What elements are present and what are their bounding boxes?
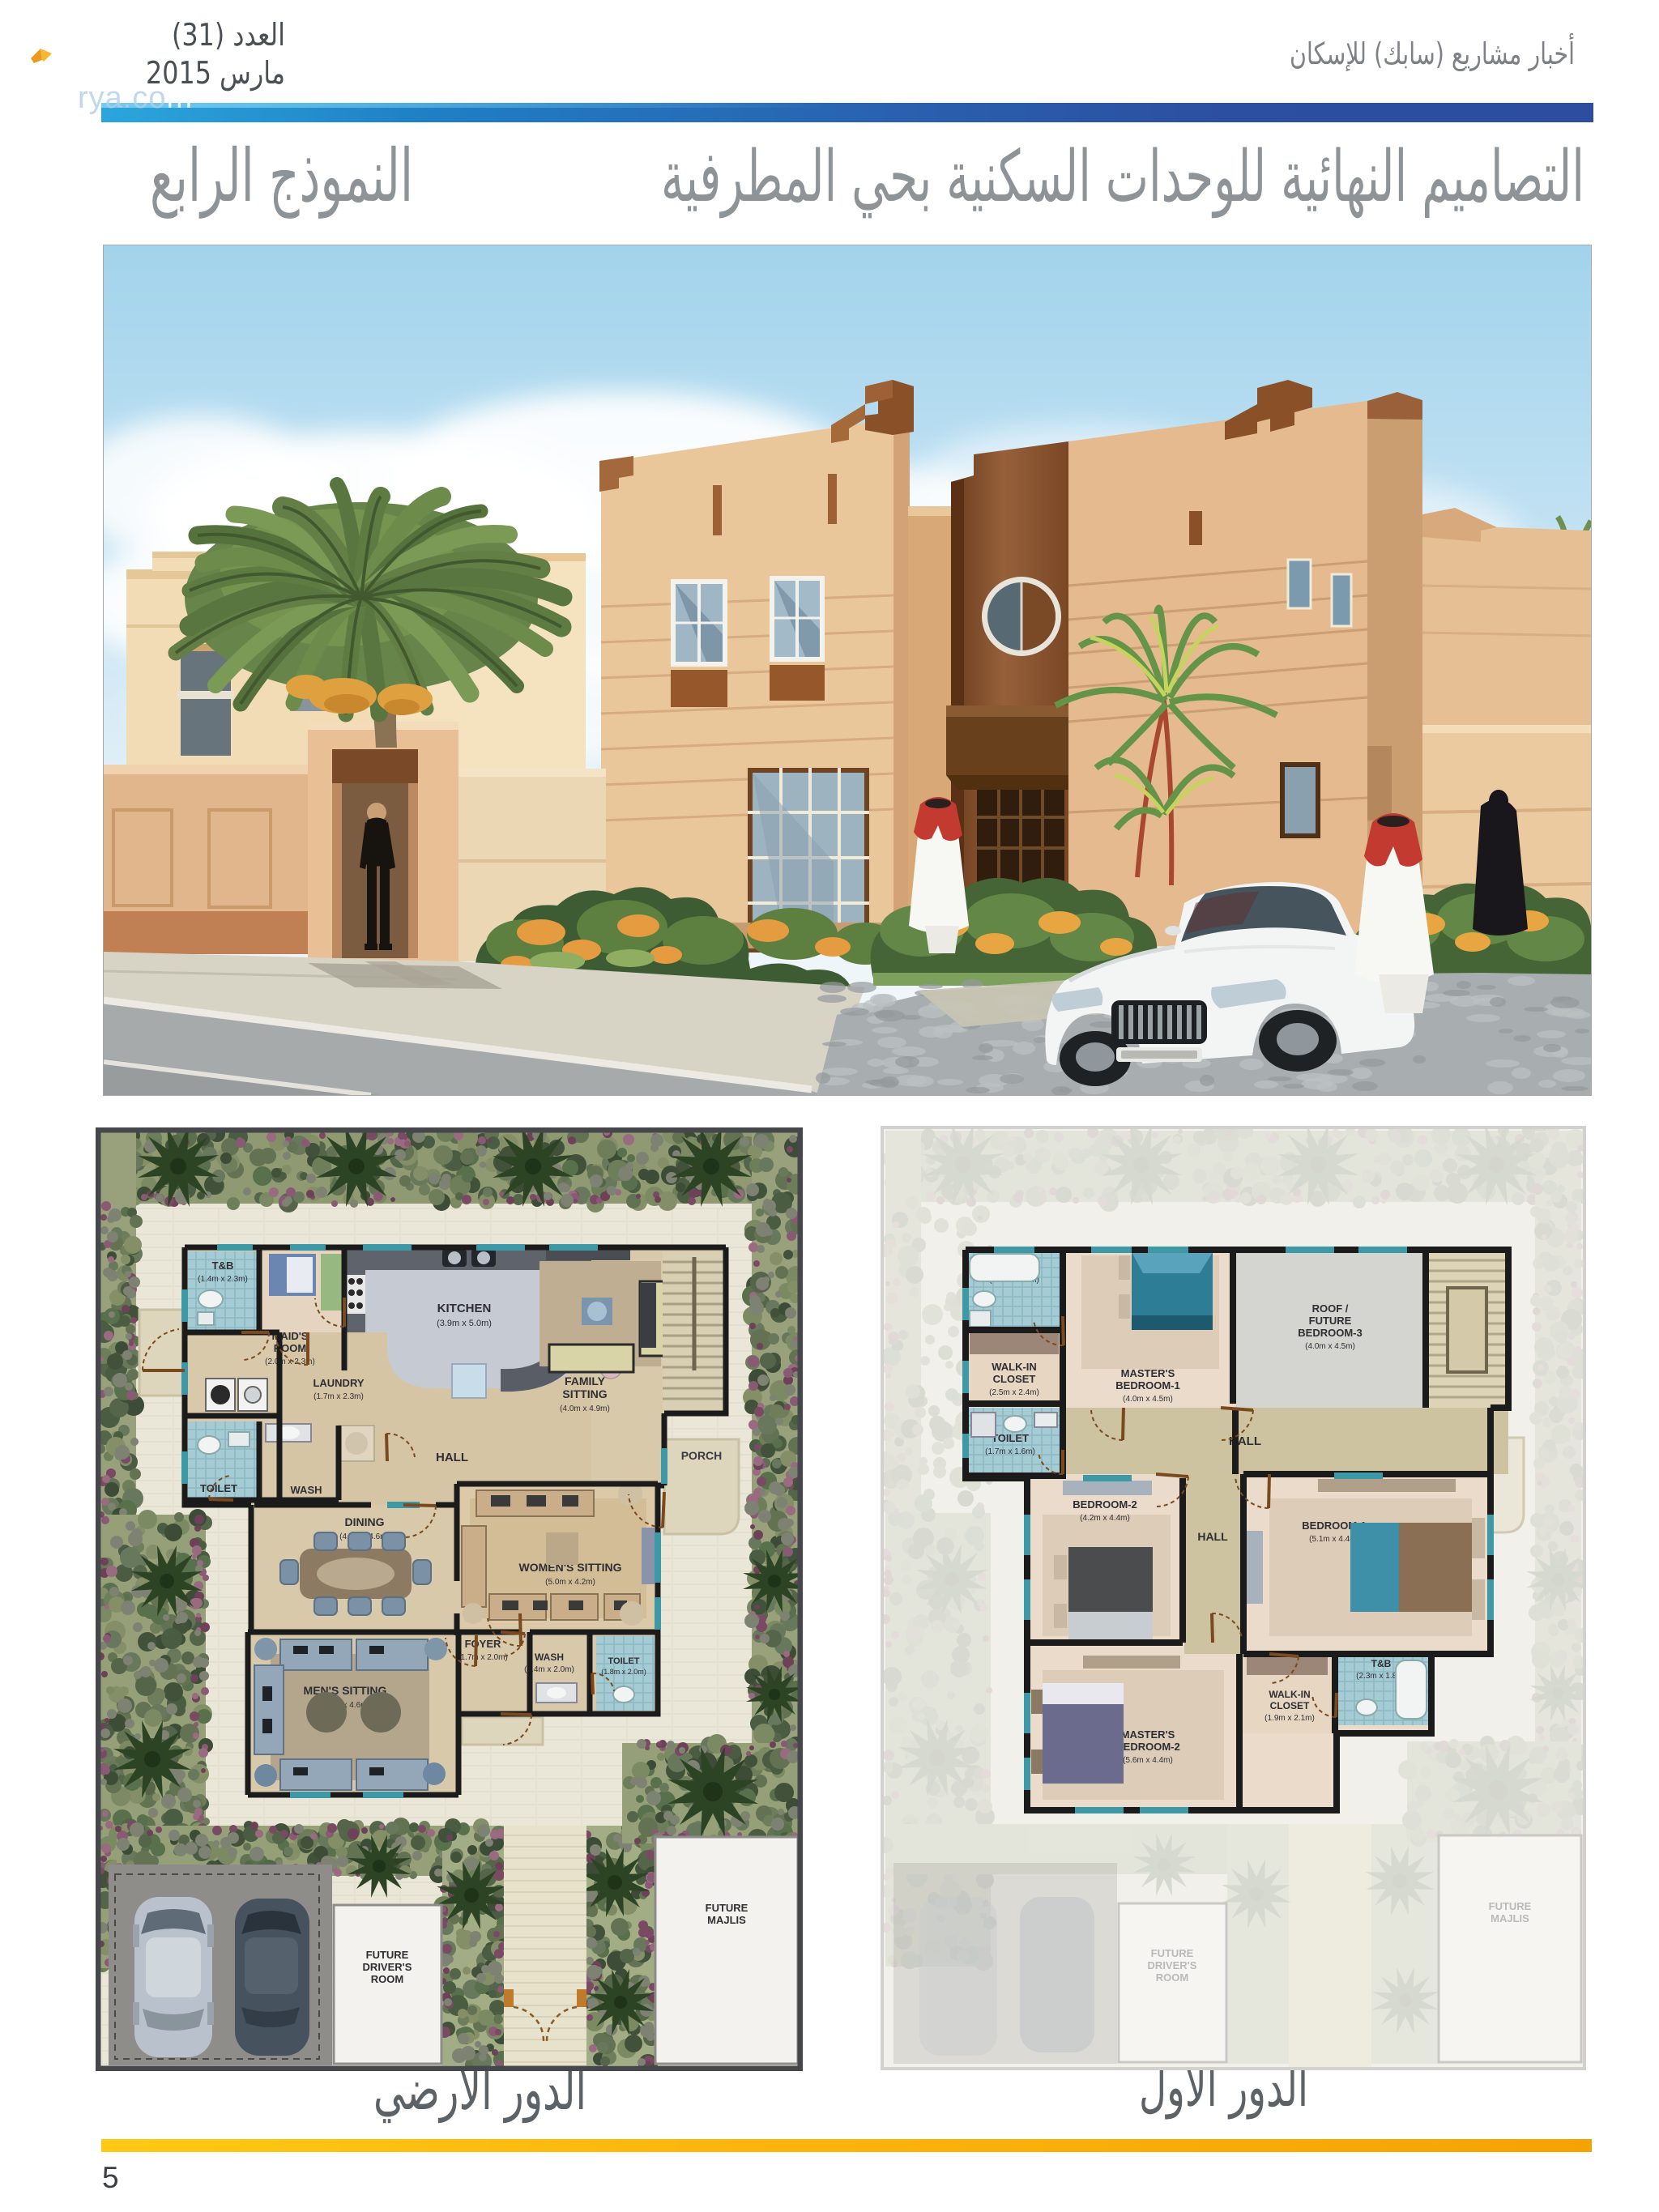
svg-text:BEDROOM-1: BEDROOM-1 xyxy=(1115,1379,1179,1392)
svg-text:FUTURE: FUTURE xyxy=(706,1902,748,1914)
svg-text:(1.7m x 2.3m): (1.7m x 2.3m) xyxy=(313,1392,364,1401)
svg-text:WALK-IN: WALK-IN xyxy=(992,1361,1037,1373)
svg-text:MAJLIS: MAJLIS xyxy=(707,1914,746,1926)
svg-text:MAJLIS: MAJLIS xyxy=(1491,1912,1529,1924)
svg-text:BEDROOM-2: BEDROOM-2 xyxy=(1073,1498,1137,1511)
svg-text:FUTURE: FUTURE xyxy=(1309,1315,1352,1327)
svg-text:HALL: HALL xyxy=(436,1451,468,1464)
svg-text:(4.0m x 4.5m): (4.0m x 4.5m) xyxy=(1305,1342,1355,1351)
svg-text:(1.7m x 2.0m): (1.7m x 2.0m) xyxy=(458,1653,508,1662)
svg-text:BEDROOM-3: BEDROOM-3 xyxy=(1298,1327,1362,1339)
svg-text:(1.8m x 2.0m): (1.8m x 2.0m) xyxy=(601,1668,646,1676)
svg-text:FOYER: FOYER xyxy=(465,1638,501,1650)
svg-text:MASTER'S: MASTER'S xyxy=(1121,1367,1175,1379)
svg-text:HALL: HALL xyxy=(1197,1530,1228,1543)
svg-text:CLOSET: CLOSET xyxy=(1270,1700,1310,1711)
svg-text:WASH: WASH xyxy=(291,1484,322,1496)
svg-text:PORCH: PORCH xyxy=(681,1449,723,1462)
svg-text:KITCHEN: KITCHEN xyxy=(437,1302,492,1315)
svg-text:DRIVER'S: DRIVER'S xyxy=(1148,1959,1197,1971)
svg-text:MASTER'S: MASTER'S xyxy=(1121,1728,1175,1741)
svg-text:(4.0m x 4.5m): (4.0m x 4.5m) xyxy=(1123,1395,1173,1404)
svg-text:LAUNDRY: LAUNDRY xyxy=(313,1377,364,1389)
svg-text:FUTURE: FUTURE xyxy=(366,1949,409,1961)
svg-text:T&B: T&B xyxy=(212,1259,234,1272)
svg-text:SITTING: SITTING xyxy=(562,1387,607,1400)
svg-text:ROOM: ROOM xyxy=(371,1973,403,1985)
svg-text:(5.6m x 4.4m): (5.6m x 4.4m) xyxy=(1123,1756,1173,1765)
svg-text:T&B: T&B xyxy=(1371,1658,1392,1669)
svg-text:(1.9m x 2.1m): (1.9m x 2.1m) xyxy=(1265,1714,1315,1723)
svg-text:ROOM: ROOM xyxy=(1156,1971,1188,1984)
svg-text:ROOF /: ROOF / xyxy=(1312,1302,1349,1315)
svg-text:(4.0m x 4.9m): (4.0m x 4.9m) xyxy=(560,1404,610,1413)
svg-text:(3.9m x 5.0m): (3.9m x 5.0m) xyxy=(437,1319,492,1328)
svg-text:FAMILY: FAMILY xyxy=(565,1375,606,1387)
svg-text:(1.7m x 1.6m): (1.7m x 1.6m) xyxy=(985,1447,1035,1456)
svg-text:CLOSET: CLOSET xyxy=(993,1373,1036,1385)
svg-text:DINING: DINING xyxy=(345,1515,385,1528)
svg-text:TOILET: TOILET xyxy=(992,1432,1029,1444)
svg-text:TOILET: TOILET xyxy=(200,1482,237,1494)
svg-text:(5.0m x 4.2m): (5.0m x 4.2m) xyxy=(545,1578,595,1587)
svg-text:BEDROOM-2: BEDROOM-2 xyxy=(1115,1741,1179,1753)
svg-text:WASH: WASH xyxy=(535,1652,564,1663)
svg-text:(1.4m x 2.3m): (1.4m x 2.3m) xyxy=(198,1275,248,1284)
svg-text:FUTURE: FUTURE xyxy=(1151,1947,1194,1959)
svg-text:(4.2m x 4.4m): (4.2m x 4.4m) xyxy=(1080,1514,1130,1523)
svg-text:TOILET: TOILET xyxy=(608,1656,640,1666)
svg-text:DRIVER'S: DRIVER'S xyxy=(363,1961,412,1973)
svg-text:WALK-IN: WALK-IN xyxy=(1269,1689,1310,1700)
svg-text:FUTURE: FUTURE xyxy=(1489,1900,1532,1912)
svg-text:(2.5m x 2.4m): (2.5m x 2.4m) xyxy=(989,1388,1039,1397)
